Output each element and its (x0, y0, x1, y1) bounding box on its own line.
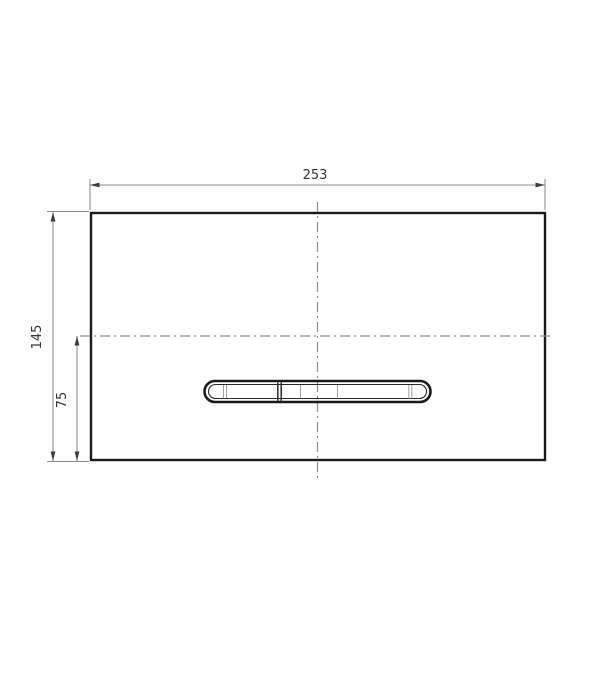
offset-dimension: 75 (55, 336, 79, 461)
arrow-up-icon (75, 336, 80, 346)
technical-drawing: 253 145 75 (0, 0, 600, 675)
arrow-up-icon (51, 212, 56, 222)
arrow-down-icon (75, 452, 80, 462)
height-dimension-label: 145 (30, 325, 45, 350)
offset-dimension-label: 75 (55, 392, 70, 409)
drawing-svg: 253 145 75 (0, 0, 600, 675)
arrow-down-icon (51, 452, 56, 462)
arrow-left-icon (90, 183, 100, 188)
width-dimension-label: 253 (303, 168, 328, 183)
arrow-right-icon (536, 183, 546, 188)
